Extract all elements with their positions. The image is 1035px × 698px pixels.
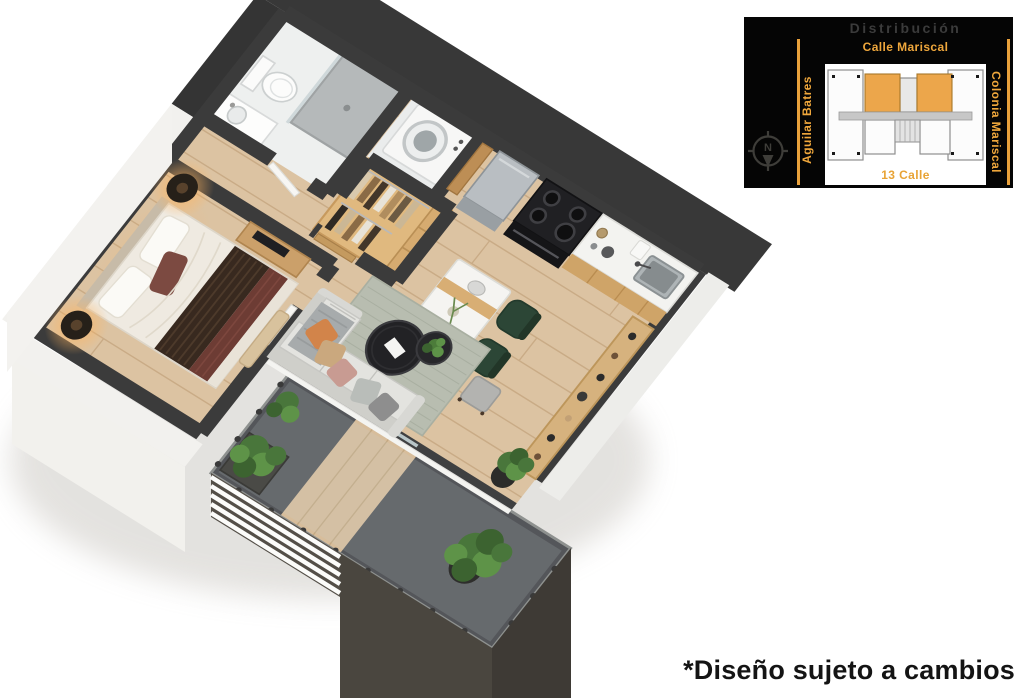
street-label-top: Calle Mariscal <box>822 40 989 54</box>
street-label-left: Aguilar Batres <box>800 76 814 164</box>
stair-core <box>895 120 920 142</box>
accent-bar-left <box>797 39 800 185</box>
disclaimer-text: *Diseño sujeto a cambios <box>683 655 1015 686</box>
distribution-inset-card: Distribución Calle Mariscal Aguilar Batr… <box>744 17 1013 188</box>
highlighted-unit-left <box>865 74 900 112</box>
inset-title: Distribución <box>822 20 989 36</box>
highlighted-unit-right <box>917 74 952 112</box>
building-plan-box: 13 Calle <box>825 64 986 185</box>
corridor <box>839 112 972 120</box>
street-label-bottom: 13 Calle <box>825 168 986 182</box>
building-floor-plate <box>825 64 986 166</box>
accent-bar-right <box>1007 39 1010 185</box>
core-top <box>900 78 917 112</box>
unit-bottom-right <box>920 120 950 154</box>
unit-bottom-left <box>865 120 895 154</box>
compass: N <box>745 127 791 173</box>
flyer-page: Distribución Calle Mariscal Aguilar Batr… <box>0 0 1035 698</box>
street-label-right: Colonia Mariscal <box>989 71 1003 173</box>
compass-north-label: N <box>764 142 772 154</box>
